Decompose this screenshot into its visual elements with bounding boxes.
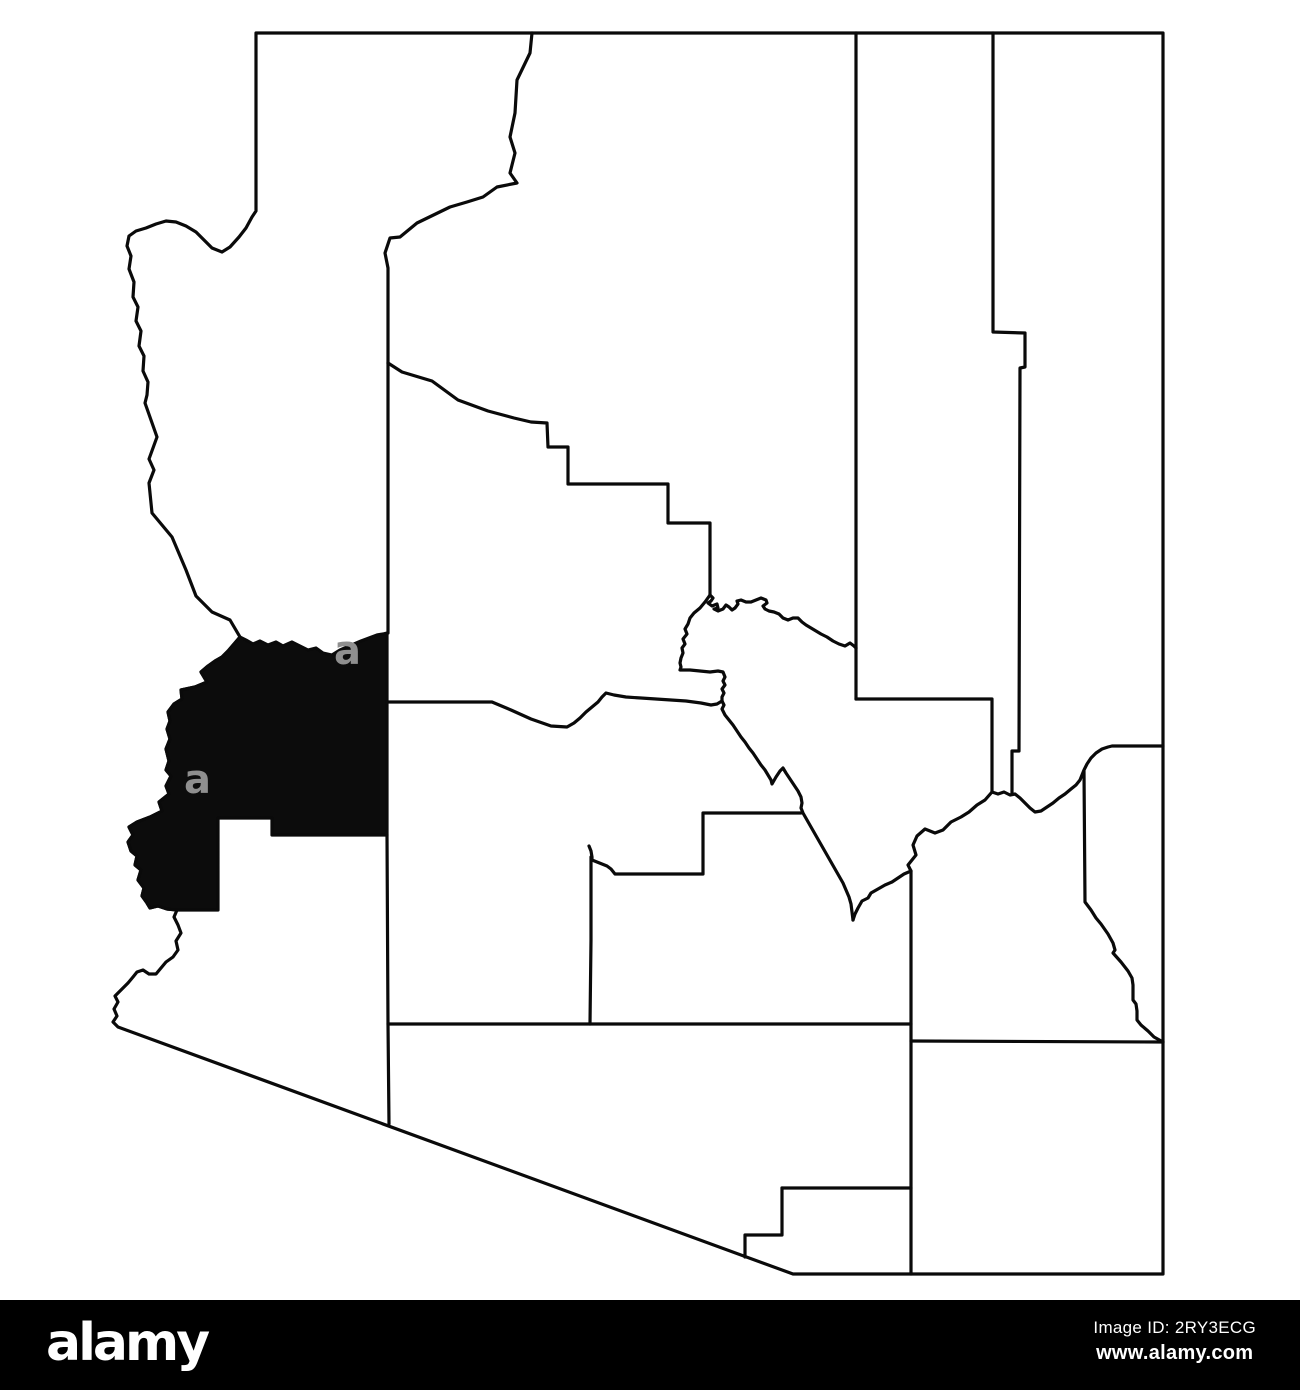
county-boundary-maricopa-pinal-vertical xyxy=(590,857,591,1024)
watermark-bar: alamy Image ID: 2RY3ECG www.alamy.com xyxy=(0,1300,1300,1390)
alamy-logo: alamy xyxy=(46,1310,207,1376)
arizona-county-map: aa xyxy=(0,0,1300,1390)
site-url-text: www.alamy.com xyxy=(1093,1340,1256,1366)
image-id-text: Image ID: 2RY3ECG xyxy=(1093,1316,1256,1340)
watermark-text-block: Image ID: 2RY3ECG www.alamy.com xyxy=(1093,1316,1256,1366)
watermark-letter: a xyxy=(334,628,361,674)
county-boundary-yuma-maricopa-pima-vertical xyxy=(387,835,389,1124)
county-boundary-graham-cochise xyxy=(911,1041,1163,1042)
watermark-letter: a xyxy=(184,757,211,803)
stock-photo-page: aa alamy Image ID: 2RY3ECG www.alamy.com xyxy=(0,0,1300,1390)
